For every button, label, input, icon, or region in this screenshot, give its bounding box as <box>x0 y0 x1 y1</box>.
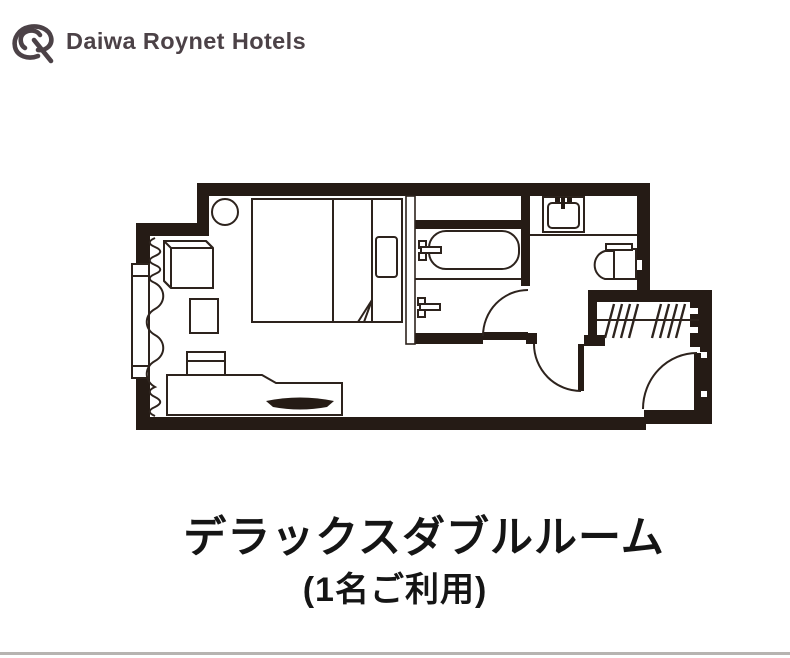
room-occupancy-subtitle: (1名ご利用) <box>0 562 790 611</box>
side-table <box>190 299 218 333</box>
partition-wall <box>406 196 415 344</box>
washbasin <box>543 197 584 232</box>
closet <box>597 304 699 338</box>
room-type-title: デラックスダブルルーム <box>29 503 790 565</box>
bathroom-door <box>483 290 528 340</box>
amenity-box <box>187 352 225 375</box>
bottom-divider <box>0 652 790 655</box>
hall-door <box>534 344 584 391</box>
shower-faucet <box>418 298 440 317</box>
toilet <box>595 244 636 279</box>
page: Daiwa Roynet Hotels <box>0 0 790 658</box>
round-table <box>212 199 238 225</box>
double-bed <box>252 199 402 322</box>
bathtub <box>419 231 519 269</box>
desk <box>167 352 342 415</box>
armchair <box>164 241 213 288</box>
pillow <box>376 237 397 277</box>
entrance-door <box>643 353 701 410</box>
bath-faucet <box>421 247 441 253</box>
